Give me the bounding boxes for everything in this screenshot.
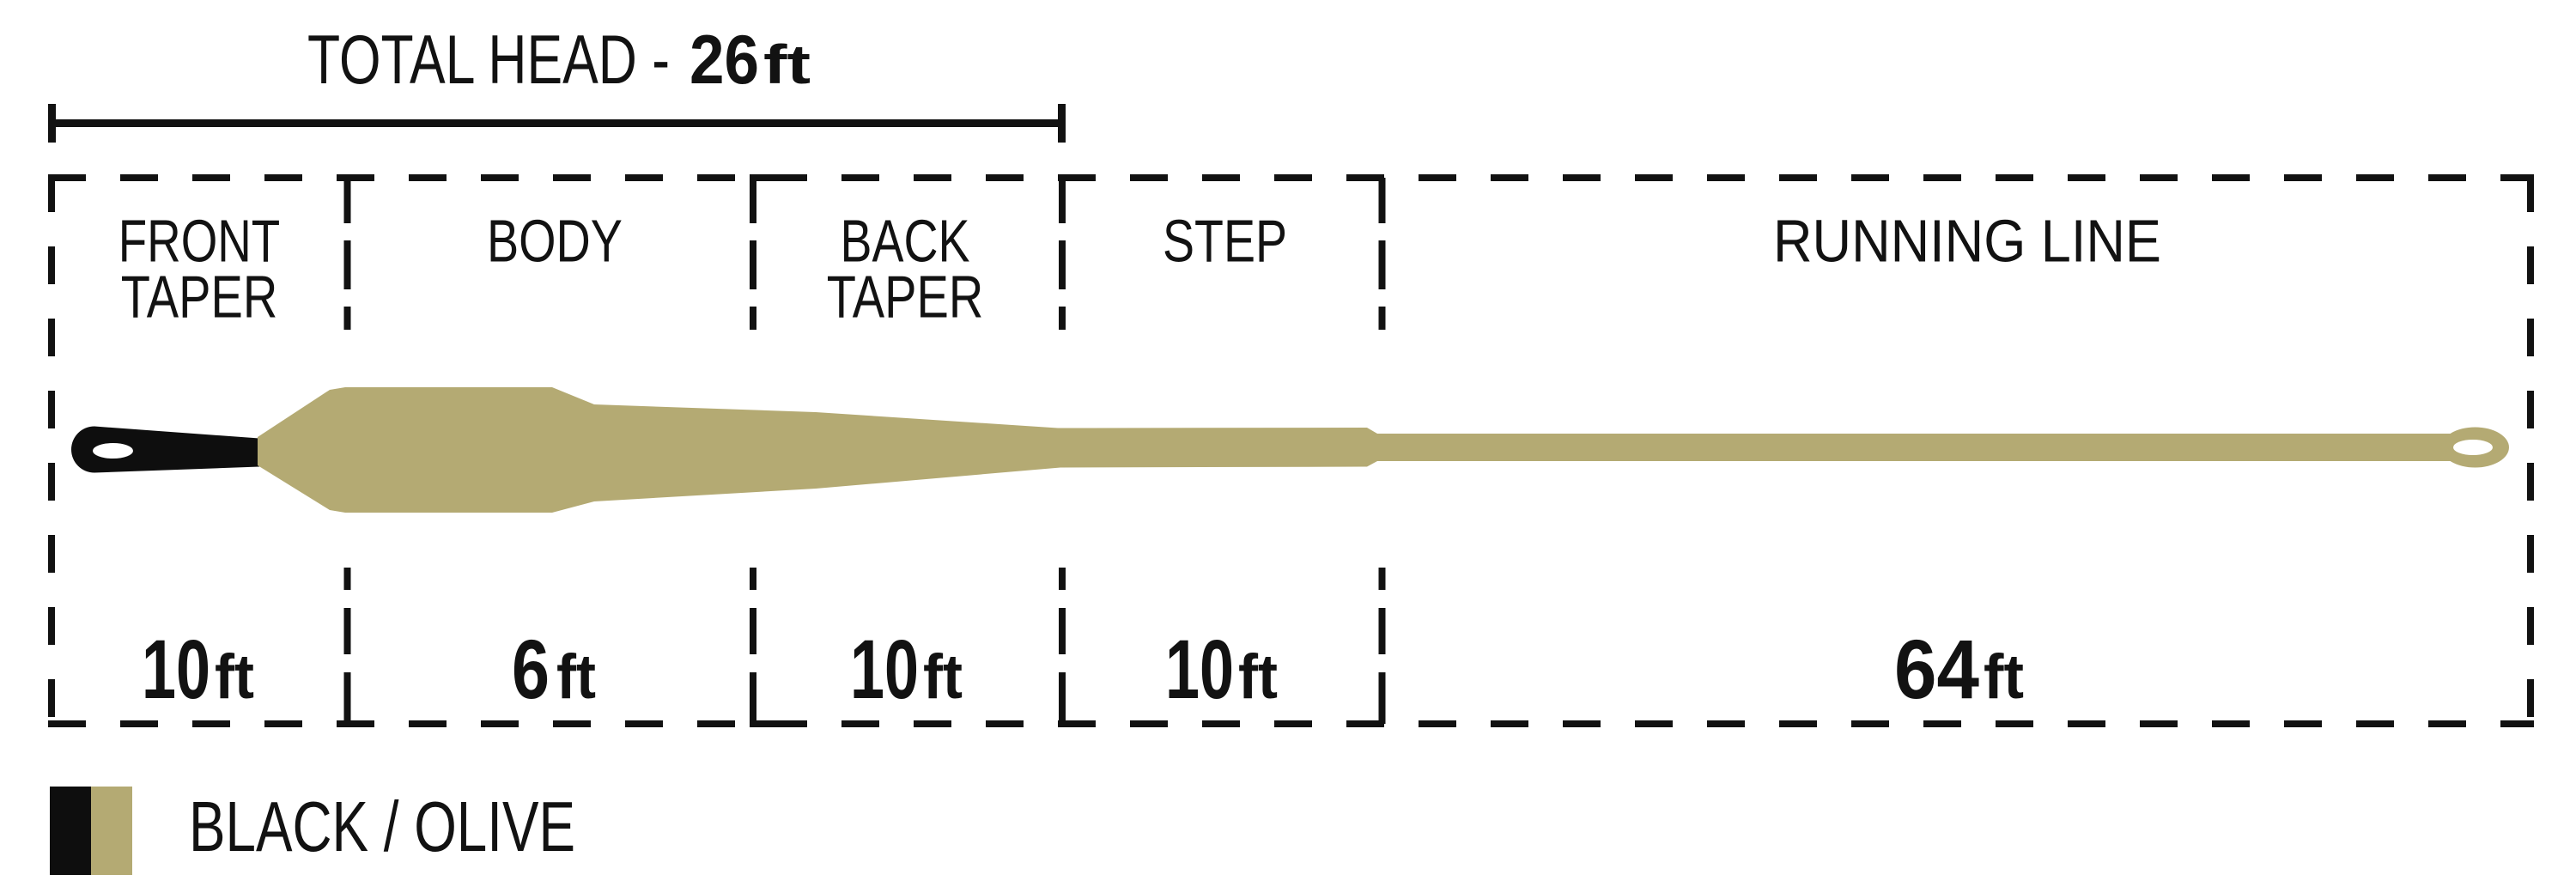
svg-text:10: 10 [850,623,919,716]
svg-text:ft: ft [1238,642,1278,712]
svg-text:ft: ft [763,33,811,95]
svg-text:6: 6 [512,623,550,716]
svg-text:ft: ft [923,642,963,712]
svg-text:TOTAL HEAD -: TOTAL HEAD - [307,21,670,99]
svg-text:26: 26 [690,21,759,99]
svg-text:64: 64 [1894,623,1979,716]
svg-text:10: 10 [1165,623,1234,716]
svg-text:TAPER: TAPER [121,264,278,331]
svg-text:10: 10 [142,623,210,716]
svg-text:RUNNING LINE: RUNNING LINE [1773,208,2161,275]
svg-text:STEP: STEP [1163,208,1287,275]
svg-text:BODY: BODY [487,208,623,275]
svg-text:TAPER: TAPER [827,264,984,331]
svg-text:BLACK / OLIVE: BLACK / OLIVE [189,787,575,866]
svg-text:ft: ft [215,642,254,712]
svg-text:ft: ft [556,642,596,712]
svg-text:ft: ft [1984,642,2024,712]
